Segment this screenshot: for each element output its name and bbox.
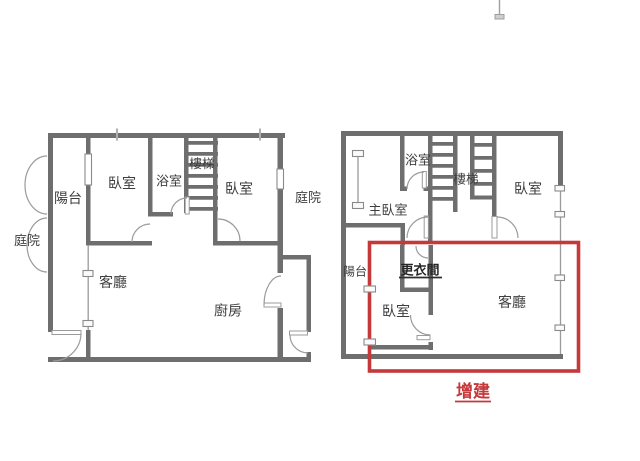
door-arc	[416, 246, 428, 258]
wall-tick	[116, 129, 118, 141]
door-arc	[411, 315, 431, 335]
window-sill	[83, 321, 93, 327]
window-sill	[555, 275, 565, 281]
master-bedroom-label: 主臥室	[368, 203, 407, 219]
window-sill	[364, 286, 376, 292]
addition-label: 增建	[456, 381, 490, 402]
top-marker	[495, 0, 504, 19]
bathroom-label: 浴室	[405, 153, 431, 169]
balcony-label: 陽台	[54, 191, 82, 207]
bedroom-bottom-label: 臥室	[382, 303, 410, 320]
door-arc	[290, 335, 308, 353]
right-plan-doors	[407, 172, 518, 340]
closet-label: 更衣間	[400, 263, 439, 279]
wall-tick	[259, 129, 261, 141]
bedroom-top-label: 臥室	[514, 181, 542, 198]
bedroom-right-label: 臥室	[225, 181, 253, 198]
window-sill	[555, 186, 565, 192]
window-sill	[364, 339, 376, 345]
left-plan: 庭院 陽台 臥室 浴室 樓梯 臥室 庭院 客廳 廚房	[14, 129, 321, 363]
window	[277, 169, 284, 189]
door-arc	[407, 172, 424, 189]
door-arc	[132, 224, 150, 242]
window-sill	[353, 203, 364, 209]
kitchen-label: 廚房	[214, 303, 242, 320]
door-leaf	[52, 331, 81, 335]
door-leaf	[422, 172, 426, 189]
door-arc	[497, 217, 518, 238]
door-leaf	[424, 216, 428, 238]
marker-cap	[495, 15, 504, 20]
bedroom-left-label: 臥室	[108, 175, 136, 192]
courtyard-left-label: 庭院	[14, 233, 40, 249]
gate-arc	[25, 156, 47, 214]
balcony-label: 陽台	[343, 264, 367, 279]
door-leaf	[417, 336, 430, 340]
floor-plan-image: 庭院 陽台 臥室 浴室 樓梯 臥室 庭院 客廳 廚房	[0, 0, 640, 461]
living-room-label: 客廳	[99, 274, 127, 291]
door-leaf	[492, 217, 497, 239]
door-leaf	[290, 331, 308, 335]
window-sill	[555, 325, 565, 331]
right-plan: 浴室 樓梯 臥室 主臥室 陽台 更衣間 臥室 客廳 增建	[341, 131, 579, 402]
door-arc	[218, 219, 240, 241]
window-sill	[555, 212, 565, 218]
door-arc	[264, 276, 281, 305]
stairs-label: 樓梯	[453, 172, 478, 187]
living-room-label: 客廳	[498, 294, 526, 311]
window	[85, 154, 92, 185]
door-arc	[53, 333, 81, 361]
window-sill	[83, 271, 93, 277]
bathroom-label: 浴室	[156, 174, 182, 190]
window-sill	[353, 151, 364, 157]
stairs-label: 樓梯	[189, 156, 214, 171]
door-leaf	[185, 197, 189, 214]
courtyard-right-label: 庭院	[295, 190, 321, 206]
door-leaf	[264, 303, 281, 307]
